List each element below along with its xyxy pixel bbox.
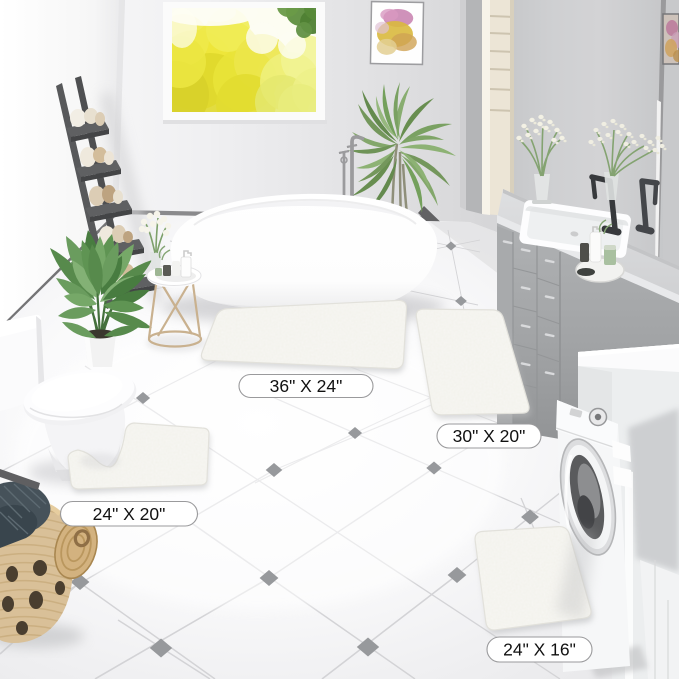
- svg-text:24" X 20": 24" X 20": [93, 504, 166, 524]
- svg-text:30" X 20": 30" X 20": [453, 426, 526, 446]
- svg-text:36" X 24": 36" X 24": [270, 376, 343, 396]
- svg-text:24" X 16": 24" X 16": [503, 640, 576, 660]
